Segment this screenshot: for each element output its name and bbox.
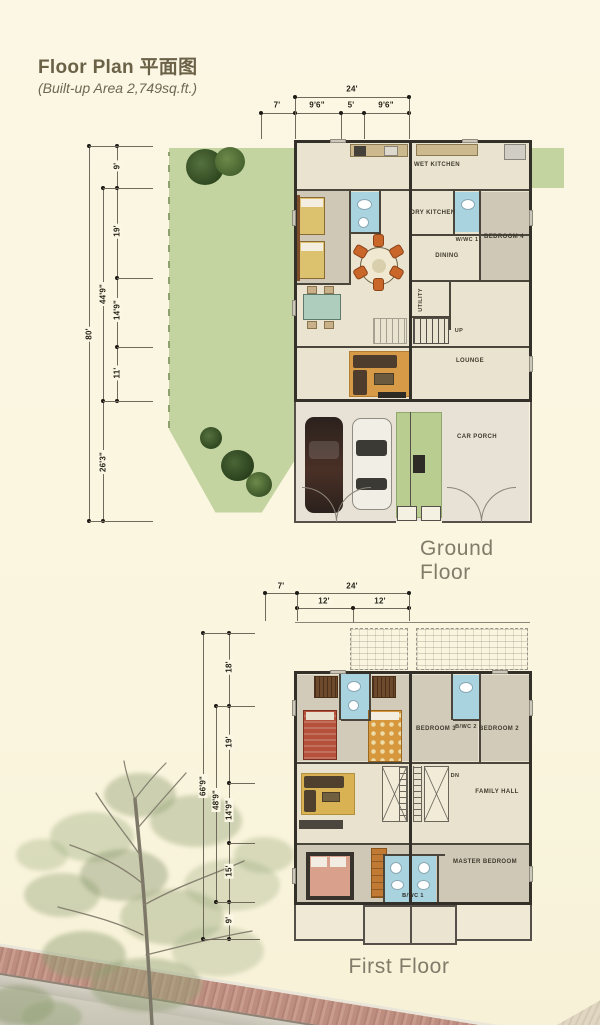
dim-label: 80' bbox=[85, 326, 94, 341]
ground-floor-caption: Ground Floor bbox=[420, 537, 540, 585]
wall-segment bbox=[411, 316, 451, 318]
dim-label: 19' bbox=[225, 734, 234, 749]
page-subtitle: (Built-up Area 2,749sq.ft.) bbox=[38, 80, 197, 96]
room-label-bedroom4: BEDROOM 4 bbox=[484, 234, 524, 240]
bed-pillow bbox=[306, 712, 334, 720]
dim-line bbox=[117, 146, 118, 403]
wall-segment bbox=[296, 346, 530, 348]
porch-wall bbox=[294, 402, 296, 523]
dim-line bbox=[265, 593, 410, 594]
wall-segment bbox=[351, 232, 381, 234]
wall-segment bbox=[339, 673, 341, 720]
car-windshield bbox=[309, 441, 339, 459]
room-label-utility: UTILITY bbox=[418, 288, 424, 312]
dim-line bbox=[229, 783, 255, 784]
dim-label: 15' bbox=[225, 863, 234, 878]
sink-icon bbox=[384, 146, 398, 156]
dim-label: 26'3" bbox=[99, 450, 108, 474]
wardrobe bbox=[314, 676, 338, 698]
wall-segment bbox=[383, 854, 445, 856]
dim-line bbox=[103, 401, 153, 402]
dim-label: 9' bbox=[225, 915, 234, 926]
car-window bbox=[356, 440, 387, 456]
window-mark bbox=[292, 210, 296, 226]
wall-segment bbox=[349, 191, 351, 285]
window-mark bbox=[529, 700, 533, 716]
dim-label: 66'9" bbox=[199, 774, 208, 798]
dim-line bbox=[229, 633, 230, 941]
dim-line bbox=[409, 595, 410, 621]
toilet-icon bbox=[347, 681, 361, 692]
stove-icon bbox=[354, 146, 366, 156]
dim-line bbox=[117, 347, 153, 348]
dim-line bbox=[229, 843, 255, 844]
wall-segment bbox=[437, 856, 439, 902]
tree-icon bbox=[215, 147, 245, 176]
stairs bbox=[413, 318, 449, 344]
sofa bbox=[353, 370, 367, 395]
bed-pillow bbox=[371, 712, 399, 720]
kitchen-counter bbox=[416, 144, 478, 156]
window-mark bbox=[462, 139, 478, 143]
wall-segment bbox=[341, 719, 371, 721]
bed-pillow bbox=[330, 857, 346, 867]
toilet-icon bbox=[461, 199, 475, 210]
sink-icon bbox=[390, 862, 402, 874]
room-label-master-bedroom: MASTER BEDROOM bbox=[453, 859, 517, 865]
dim-label: 11' bbox=[113, 366, 122, 381]
stairs bbox=[399, 766, 408, 822]
roof-hatch bbox=[416, 628, 528, 670]
wardrobe bbox=[372, 676, 396, 698]
garden-side-strip bbox=[532, 148, 564, 188]
toilet-icon bbox=[459, 682, 473, 693]
chair bbox=[307, 286, 317, 294]
wall-segment bbox=[296, 189, 530, 191]
sink-icon bbox=[358, 217, 369, 228]
roof-hatch bbox=[350, 628, 408, 670]
dim-label: 14'9" bbox=[225, 798, 234, 822]
sink-icon bbox=[418, 862, 430, 874]
party-wall bbox=[409, 671, 412, 905]
dim-label: 9'6" bbox=[376, 101, 395, 110]
tv-console bbox=[378, 392, 406, 398]
dim-line bbox=[216, 902, 255, 903]
room-label-up: UP bbox=[455, 328, 463, 334]
wall-segment bbox=[451, 673, 453, 720]
dim-label: 19' bbox=[113, 223, 122, 238]
dim-label: 18' bbox=[225, 659, 234, 674]
bed-pillow bbox=[301, 243, 323, 251]
balcony-wall bbox=[294, 905, 296, 941]
tv-console bbox=[299, 820, 343, 829]
dim-label: 24' bbox=[344, 85, 359, 94]
sink-icon bbox=[348, 700, 359, 711]
room-label-bedroom3: BEDROOM 3 bbox=[416, 726, 456, 732]
window-mark bbox=[529, 356, 533, 372]
room-label-wet-kitchen: WET KITCHEN bbox=[414, 162, 460, 168]
wall-segment bbox=[383, 856, 385, 902]
page-title: Floor Plan 平面图 bbox=[38, 52, 197, 79]
room-label-wc1: W/WC 1 bbox=[456, 237, 479, 243]
room-label-car-porch: CAR PORCH bbox=[457, 434, 497, 440]
tree-photo bbox=[0, 733, 320, 1025]
wall-segment bbox=[296, 762, 530, 764]
chair bbox=[373, 234, 384, 247]
dim-line bbox=[261, 113, 410, 114]
tree-icon bbox=[200, 427, 222, 449]
photo-roof-corner bbox=[543, 993, 600, 1025]
roof-edge-line bbox=[295, 622, 530, 623]
table-rect bbox=[303, 294, 341, 320]
brochure-page: Floor Plan 平面图 (Built-up Area 2,749sq.ft… bbox=[0, 0, 600, 1025]
room-label-lounge: LOUNGE bbox=[456, 358, 484, 364]
dim-line bbox=[89, 146, 153, 147]
window-mark bbox=[292, 700, 296, 716]
window-mark bbox=[529, 210, 533, 226]
porch-fence bbox=[410, 412, 411, 520]
party-wall bbox=[409, 140, 412, 402]
fridge-icon bbox=[504, 144, 526, 160]
dim-line bbox=[261, 115, 262, 139]
gate-box bbox=[397, 506, 417, 521]
party-wall bbox=[410, 905, 412, 945]
wall-segment bbox=[453, 719, 479, 721]
dim-label: 12' bbox=[316, 597, 331, 606]
stairs bbox=[373, 318, 407, 344]
dim-line bbox=[295, 97, 410, 98]
dim-label: 7' bbox=[276, 582, 287, 591]
dim-line bbox=[216, 706, 255, 707]
dim-label: 48'9" bbox=[212, 788, 221, 812]
dim-line bbox=[203, 939, 260, 940]
chair bbox=[324, 286, 334, 294]
gate-post bbox=[413, 455, 425, 473]
stairs bbox=[413, 766, 422, 822]
dim-line bbox=[103, 188, 153, 189]
dim-line bbox=[295, 99, 296, 139]
dim-line bbox=[265, 595, 266, 621]
dim-label: 5' bbox=[346, 101, 357, 110]
tree-icon bbox=[246, 472, 272, 497]
dim-line bbox=[364, 115, 365, 139]
room-label-dn: DN bbox=[451, 773, 460, 779]
dining-table-center bbox=[372, 259, 386, 273]
balcony-wall bbox=[530, 905, 532, 941]
chair bbox=[307, 321, 317, 329]
porch-wall bbox=[530, 402, 532, 523]
window-mark bbox=[292, 300, 296, 316]
sofa bbox=[304, 790, 316, 812]
sofa bbox=[304, 776, 344, 788]
dim-label: 9'6" bbox=[307, 101, 326, 110]
dim-label: 44'9" bbox=[99, 282, 108, 306]
dim-line bbox=[297, 595, 298, 621]
coffee-table bbox=[374, 373, 394, 385]
room-label-bedroom2: BEDROOM 2 bbox=[479, 726, 519, 732]
wall-segment bbox=[479, 673, 481, 762]
chair bbox=[324, 321, 334, 329]
bed-pillow bbox=[301, 199, 323, 207]
coffee-table bbox=[322, 792, 340, 802]
room-label-bwc1: B/WC 1 bbox=[402, 893, 424, 899]
sofa bbox=[353, 355, 397, 368]
airwell-box bbox=[424, 766, 449, 822]
wall-segment bbox=[379, 191, 381, 234]
room-label-dry-kitchen: DRY KITCHEN bbox=[410, 210, 455, 216]
dim-line bbox=[341, 115, 342, 139]
dim-line bbox=[203, 633, 255, 634]
dim-label: 14'9" bbox=[113, 298, 122, 322]
window-mark bbox=[330, 139, 346, 143]
dim-line bbox=[353, 610, 354, 622]
wall-segment bbox=[479, 191, 481, 281]
dim-label: 12' bbox=[372, 597, 387, 606]
first-floor-caption: First Floor bbox=[348, 955, 449, 979]
toilet-icon bbox=[417, 880, 430, 890]
dim-label: 9' bbox=[113, 161, 122, 172]
window-mark bbox=[492, 670, 508, 674]
bathroom bbox=[455, 192, 481, 232]
dim-label: 7' bbox=[272, 101, 283, 110]
gate-box bbox=[421, 506, 441, 521]
dim-label: 24' bbox=[344, 582, 359, 591]
dim-line bbox=[89, 521, 153, 522]
toilet-icon bbox=[357, 199, 372, 210]
wall-segment bbox=[296, 843, 530, 845]
wall-segment bbox=[411, 280, 530, 282]
dim-line bbox=[409, 99, 410, 139]
chair bbox=[373, 278, 384, 291]
window-mark bbox=[529, 866, 533, 882]
window-mark bbox=[330, 670, 346, 674]
wall-segment bbox=[369, 673, 371, 720]
wall-segment bbox=[297, 283, 351, 285]
room-label-family-hall: FAMILY HALL bbox=[475, 789, 518, 795]
ff-bedroom2-floor bbox=[481, 675, 529, 761]
wall-segment bbox=[449, 282, 451, 330]
room-label-bwc2: B/WC 2 bbox=[455, 724, 477, 730]
garden-edge-hatch bbox=[168, 152, 170, 428]
bed-pillow bbox=[311, 857, 327, 867]
wall-outer bbox=[294, 140, 297, 402]
toilet-icon bbox=[391, 880, 404, 890]
dim-line bbox=[117, 278, 153, 279]
room-label-dining: DINING bbox=[435, 253, 458, 259]
window-mark bbox=[292, 868, 296, 884]
